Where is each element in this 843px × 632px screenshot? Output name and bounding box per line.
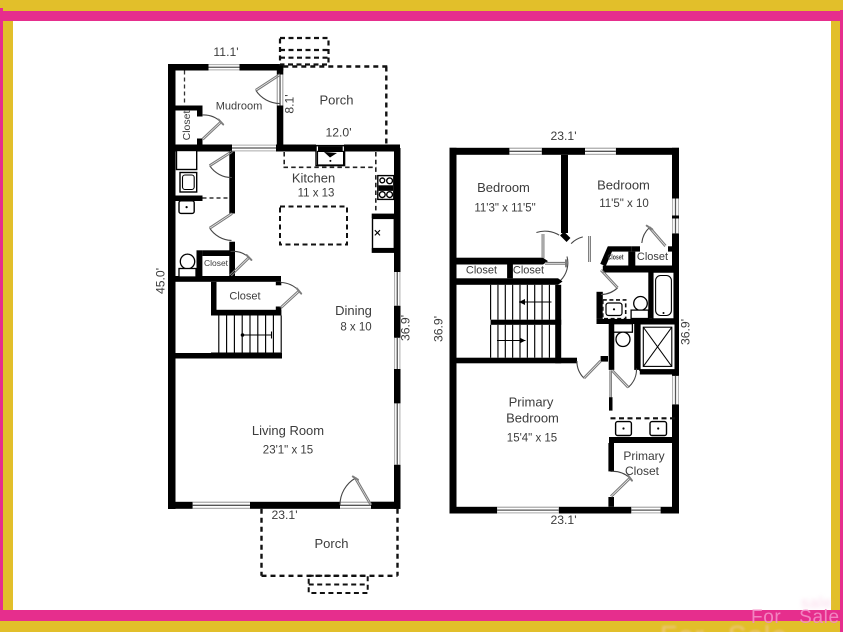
svg-text:Closet: Closet (181, 111, 193, 141)
svg-text:Closet: Closet (466, 265, 497, 277)
svg-text:Bedroom: Bedroom (506, 410, 559, 425)
svg-text:11 x 13: 11 x 13 (298, 188, 335, 200)
svg-text:Kitchen: Kitchen (292, 170, 335, 185)
svg-text:36.9': 36.9' (432, 316, 446, 342)
svg-text:36.9': 36.9' (679, 319, 693, 345)
svg-text:Porch: Porch (315, 536, 349, 551)
svg-text:Bedroom: Bedroom (597, 177, 650, 192)
svg-text:45.0': 45.0' (154, 268, 168, 294)
svg-text:11.1': 11.1' (213, 45, 238, 59)
svg-text:Closet: Closet (513, 265, 544, 277)
svg-text:Closet: Closet (229, 291, 260, 303)
svg-text:Dining: Dining (335, 303, 372, 318)
svg-text:23.1': 23.1' (550, 513, 576, 527)
svg-text:Closet: Closet (625, 464, 660, 478)
svg-text:Bedroom: Bedroom (477, 180, 530, 195)
svg-text:Closet: Closet (608, 255, 624, 262)
svg-text:Primary: Primary (623, 449, 664, 463)
svg-text:15'4" x 15: 15'4" x 15 (507, 433, 557, 445)
svg-text:Primary: Primary (509, 394, 554, 409)
svg-text:Closet: Closet (637, 251, 668, 263)
svg-text:Mudroom: Mudroom (216, 100, 262, 112)
svg-text:8.1': 8.1' (283, 94, 297, 113)
svg-text:23.1': 23.1' (271, 508, 297, 522)
svg-text:8 x 10: 8 x 10 (340, 322, 371, 334)
svg-text:11'3" x 11'5": 11'3" x 11'5" (474, 203, 535, 215)
svg-text:Porch: Porch (320, 92, 354, 107)
svg-text:23.1': 23.1' (550, 129, 576, 143)
svg-text:Closet: Closet (204, 258, 229, 268)
svg-text:23'1" x 15: 23'1" x 15 (263, 445, 313, 457)
svg-text:12.0': 12.0' (325, 126, 351, 140)
svg-text:Living Room: Living Room (252, 423, 324, 438)
svg-text:11'5" x 10: 11'5" x 10 (599, 198, 649, 210)
svg-text:36.9': 36.9' (399, 315, 413, 341)
